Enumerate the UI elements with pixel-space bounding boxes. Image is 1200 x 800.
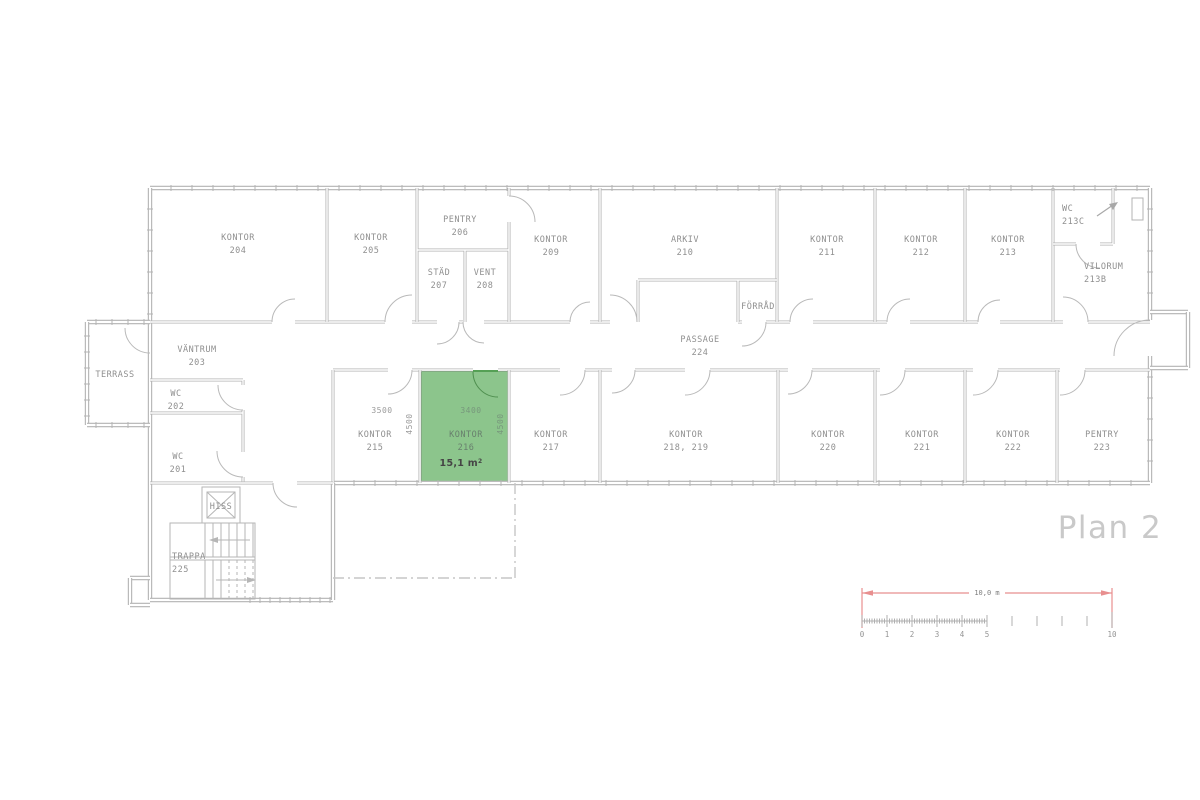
- room-label-213b: VILORUM: [1084, 262, 1123, 272]
- scale-number: 5: [985, 630, 990, 639]
- room-label-216: KONTOR: [449, 430, 483, 440]
- room-label-203: VÄNTRUM: [177, 344, 216, 355]
- room-label-hiss: HISS: [210, 502, 232, 512]
- room-number: 221: [914, 443, 931, 453]
- room-label-215: KONTOR: [358, 430, 392, 440]
- room-label-220: KONTOR: [811, 430, 845, 440]
- room-label-224: PASSAGE: [680, 335, 719, 345]
- room-number: 211: [819, 248, 836, 258]
- room-label-210: ARKIV: [671, 235, 699, 245]
- room-number: 206: [452, 228, 469, 238]
- room-number: 217: [543, 443, 560, 453]
- room-number: 223: [1094, 443, 1111, 453]
- room-label-terrass: TERRASS: [95, 370, 134, 380]
- dimension-label: 4500: [496, 413, 505, 434]
- room-number: 225: [172, 565, 189, 575]
- room-number-216: 216: [458, 443, 475, 453]
- room-label-f-rr-d: FÖRRÅD: [741, 300, 775, 312]
- room-label-206: PENTRY: [443, 215, 477, 225]
- room-label-201: WC: [172, 452, 183, 462]
- dimension-label: 4500: [405, 413, 414, 434]
- room-label-211: KONTOR: [810, 235, 844, 245]
- room-number: 213C: [1062, 217, 1084, 227]
- room-number: 204: [230, 246, 247, 256]
- scale-number: 3: [935, 630, 940, 639]
- room-label-204: KONTOR: [221, 233, 255, 243]
- room-label-205: KONTOR: [354, 233, 388, 243]
- room-area-label: 15,1 m2: [440, 458, 483, 469]
- scale-number: 0: [860, 630, 865, 639]
- room-label-217: KONTOR: [534, 430, 568, 440]
- room-number: 203: [189, 358, 206, 368]
- room-number: 213B: [1084, 275, 1106, 285]
- room-label-207: STÄD: [428, 267, 450, 278]
- room-number: 218, 219: [664, 443, 709, 453]
- room-number: 207: [431, 281, 448, 291]
- scale-number: 10: [1107, 630, 1117, 639]
- scale-number: 4: [960, 630, 965, 639]
- room-number: 215: [367, 443, 384, 453]
- scale-length-label: 10,0 m: [974, 589, 999, 597]
- room-label-213c: WC: [1062, 204, 1073, 214]
- room-number: 220: [820, 443, 837, 453]
- room-number: 202: [168, 402, 185, 412]
- room-label-209: KONTOR: [534, 235, 568, 245]
- room-number: 208: [477, 281, 494, 291]
- scale-number: 2: [910, 630, 915, 639]
- room-label-221: KONTOR: [905, 430, 939, 440]
- room-number: 224: [692, 348, 709, 358]
- room-label-218-219: KONTOR: [669, 430, 703, 440]
- room-label-223: PENTRY: [1085, 430, 1119, 440]
- dimension-label: 3500: [371, 406, 392, 415]
- shaft-column: [1132, 198, 1143, 220]
- floor-plan-canvas: KONTOR204KONTOR205PENTRY206STÄD207VENT20…: [0, 0, 1200, 800]
- room-label-202: WC: [170, 389, 181, 399]
- room-label-222: KONTOR: [996, 430, 1030, 440]
- room-number: 213: [1000, 248, 1017, 258]
- room-label-212: KONTOR: [904, 235, 938, 245]
- dimension-label: 3400: [460, 406, 481, 415]
- room-label-225: TRAPPA: [172, 552, 206, 562]
- room-number: 205: [363, 246, 380, 256]
- room-label-208: VENT: [474, 268, 496, 278]
- room-number: 201: [170, 465, 187, 475]
- floor-plan-drawing: KONTOR204KONTOR205PENTRY206STÄD207VENT20…: [0, 0, 1200, 800]
- scale-number: 1: [885, 630, 890, 639]
- plan-title: Plan 2: [1058, 510, 1163, 546]
- room-number: 209: [543, 248, 560, 258]
- room-label-213: KONTOR: [991, 235, 1025, 245]
- room-number: 212: [913, 248, 930, 258]
- room-number: 210: [677, 248, 694, 258]
- room-number: 222: [1005, 443, 1022, 453]
